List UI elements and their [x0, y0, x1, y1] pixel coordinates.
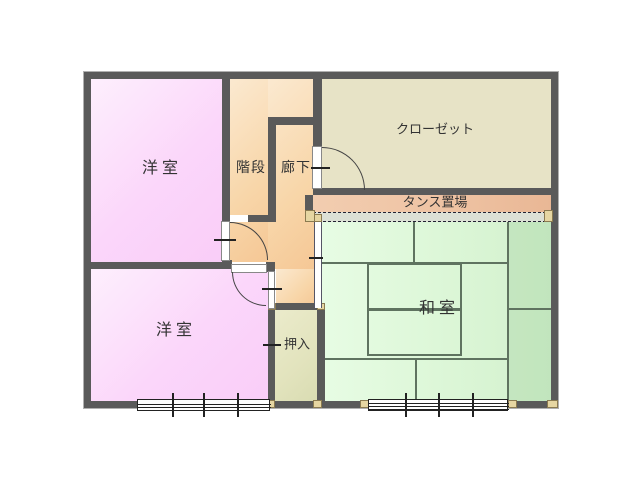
tansu-sliding-partition [313, 212, 551, 222]
door-yoshitsu-upper-opening [221, 221, 230, 261]
post [544, 210, 553, 222]
tatami-right-column-shade [507, 222, 551, 401]
room-yoshitsu-lower-label: 洋室 [156, 322, 196, 338]
window-tick [203, 393, 205, 417]
tatami-line [507, 308, 551, 310]
room-oshiire-fill [275, 310, 317, 401]
wall-outer-right [551, 72, 558, 408]
floor-plan: 洋室 階段 廊下 クローゼット タンス置場 和室 洋室 押入 [84, 72, 558, 408]
room-washitsu-label: 和室 [419, 300, 459, 316]
door-tick [214, 239, 236, 241]
room-yoshitsu-upper-label: 洋室 [142, 160, 182, 176]
wall-stairs-left [222, 72, 230, 215]
door-tick [262, 288, 282, 290]
tatami-line [507, 222, 509, 401]
door-tick [309, 257, 323, 259]
window-tick [472, 393, 474, 417]
sliding-door-washitsu [314, 222, 322, 308]
wall-yoshitsu-lower-right [268, 308, 275, 401]
tatami-line [413, 222, 415, 262]
tatami-line [415, 358, 417, 401]
room-oshiire-label: 押入 [284, 339, 310, 352]
wall-corridor-left [268, 117, 276, 222]
door-tick [311, 167, 330, 169]
wall-closet-left-upper [313, 79, 322, 147]
room-closet-label: クローゼット [396, 124, 474, 137]
wall-tansu-left [305, 195, 313, 210]
post [314, 214, 322, 222]
window-tick [438, 393, 440, 417]
window-tick [405, 393, 407, 417]
post [313, 400, 322, 408]
stairs-entrance-opening [230, 215, 248, 222]
door-tick [263, 344, 281, 346]
page: { "rooms": { "yoshitsu_upper": "洋室", "ka… [0, 0, 640, 480]
post [508, 400, 517, 408]
wall-between-yoshitsu [84, 262, 232, 269]
wall-oshiire-right [317, 310, 325, 401]
room-tansu-label: タンス置場 [403, 197, 468, 210]
wall-outer-left [84, 72, 91, 408]
room-rouka-label: 廊下 [281, 161, 311, 175]
room-kaidan-label: 階段 [236, 161, 266, 175]
door-yoshitsu-lower-jamb [268, 271, 275, 309]
window-tick [172, 393, 174, 417]
window-tick [237, 393, 239, 417]
post [547, 400, 558, 408]
wall-outer-top [84, 72, 558, 79]
